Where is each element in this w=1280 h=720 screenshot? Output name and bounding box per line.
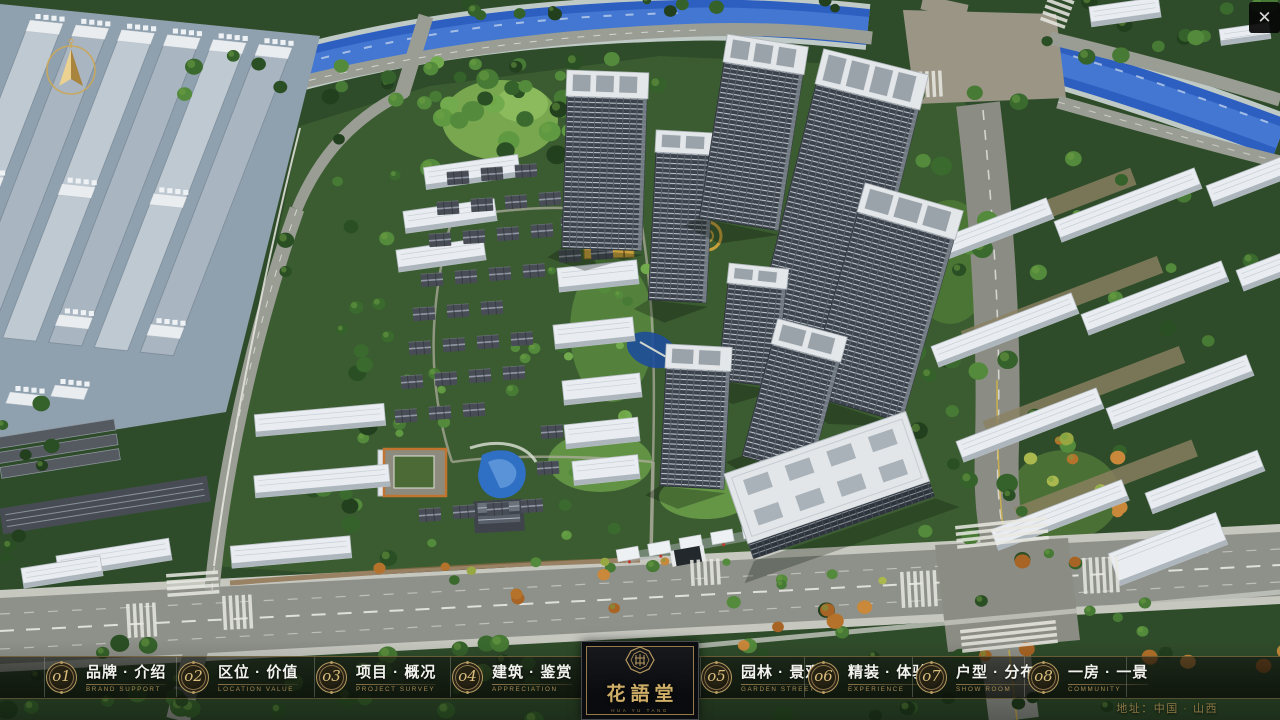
menu-label-zh: 项目 · 概况 [356,661,436,682]
menu-item-architecture[interactable]: o4 建筑 · 鉴赏 APPRECIATION [452,657,572,697]
separator [176,657,177,697]
menu-item-garden[interactable]: o5 园林 · 景观 GARDEN STREET [701,657,821,697]
menu-label-zh: 一房 · 一景 [1068,661,1148,682]
menu-label-en: COMMUNITY [1068,686,1121,693]
separator [314,657,315,697]
menu-badge: o1 [46,662,77,693]
menu-item-floorplan[interactable]: o7 户型 · 分布 SHOW ROOM [916,657,1036,697]
menu-label-zh: 品牌 · 介绍 [86,661,166,682]
gold-rule [956,684,1036,685]
gold-rule [86,684,166,685]
presentation-window: ✕ o1 品牌 · 介绍 BRAND SUPPORT o2 区位 · 价值 LO… [0,0,1280,720]
project-name-latin: HUA YU TANG [611,708,669,713]
seal-emblem-icon [625,646,655,678]
menu-label-en: LOCATION VALUE [218,686,294,693]
menu-item-project[interactable]: o3 项目 · 概况 PROJECT SURVEY [316,657,436,697]
gold-rule [356,684,436,685]
menu-label-en: PROJECT SURVEY [356,686,435,693]
menu-item-interior[interactable]: o6 精装 · 体验 EXPERIENCE [808,657,928,697]
compass-north-icon [42,36,102,100]
menu-item-views[interactable]: o8 一房 · 一景 COMMUNITY [1028,657,1148,697]
menu-item-location[interactable]: o2 区位 · 价值 LOCATION VALUE [178,657,298,697]
menu-badge: o5 [701,662,732,693]
menu-badge: o2 [178,662,209,693]
separator [450,657,451,697]
menu-label-en: BRAND SUPPORT [86,686,161,693]
menu-label-zh: 建筑 · 鉴赏 [492,661,572,682]
menu-badge: o7 [916,662,947,693]
menu-badge: o3 [316,662,347,693]
menu-badge: o4 [452,662,483,693]
menu-label-zh: 户型 · 分布 [956,661,1036,682]
menu-label-en: GARDEN STREET [741,686,815,693]
menu-badge: o6 [808,662,839,693]
menu-badge: o8 [1028,662,1059,693]
menu-label-en: APPRECIATION [492,686,558,693]
close-button[interactable]: ✕ [1249,2,1280,33]
masterplan-3d-view[interactable] [0,0,1280,720]
project-logo-panel[interactable]: 花語堂 HUA YU TANG [581,641,699,720]
separator [44,657,45,697]
gold-rule [1068,684,1148,685]
project-address: 地址：中国 · 山西 [1116,700,1218,716]
menu-item-brand[interactable]: o1 品牌 · 介绍 BRAND SUPPORT [46,657,166,697]
gold-rule [218,684,298,685]
menu-label-en: SHOW ROOM [956,686,1011,693]
menu-label-en: EXPERIENCE [848,686,905,693]
menu-label-zh: 区位 · 价值 [218,661,298,682]
gold-rule [492,684,572,685]
project-name: 花語堂 [601,679,678,706]
